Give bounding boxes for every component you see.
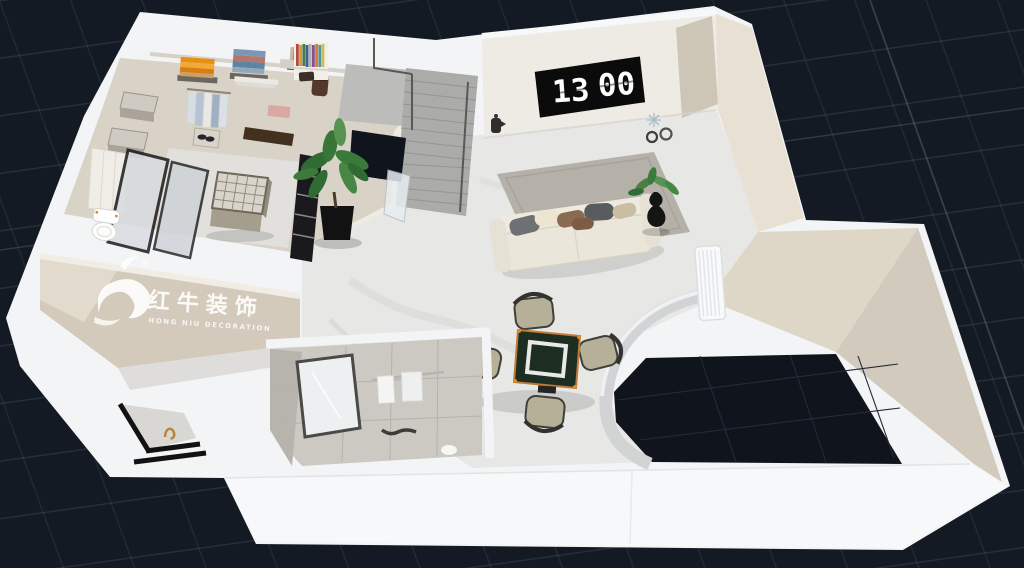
plant-pot [320, 206, 354, 240]
bathroom-mirror [297, 355, 360, 437]
star-ornament [647, 113, 661, 127]
glass-wardrobe-doors [108, 150, 208, 258]
registered-mark: ® [140, 258, 151, 270]
storage-box-upper [120, 92, 158, 122]
shoe-box [193, 128, 220, 148]
towel [402, 372, 423, 402]
folded-clothes-orange [177, 57, 219, 84]
render-canvas: ® 红牛装饰 HONG NIU DECORATION [0, 0, 1024, 568]
chair-north [513, 292, 554, 330]
wall-side-panel [676, 16, 718, 118]
stair-landing [338, 64, 410, 126]
floorplan-3d-viewport[interactable]: ® 红牛装饰 HONG NIU DECORATION [0, 0, 1024, 568]
bottom-wall-face [224, 464, 1007, 548]
radiator [695, 245, 726, 321]
pink-folded-item [267, 105, 290, 118]
book-shelf [294, 42, 328, 81]
chair-south [524, 395, 565, 433]
table-drawer [538, 385, 556, 393]
bathroom [266, 332, 490, 466]
towel [377, 376, 394, 404]
paper-roll [441, 445, 457, 455]
table-top [514, 330, 580, 388]
bottom-wall [224, 464, 1007, 548]
